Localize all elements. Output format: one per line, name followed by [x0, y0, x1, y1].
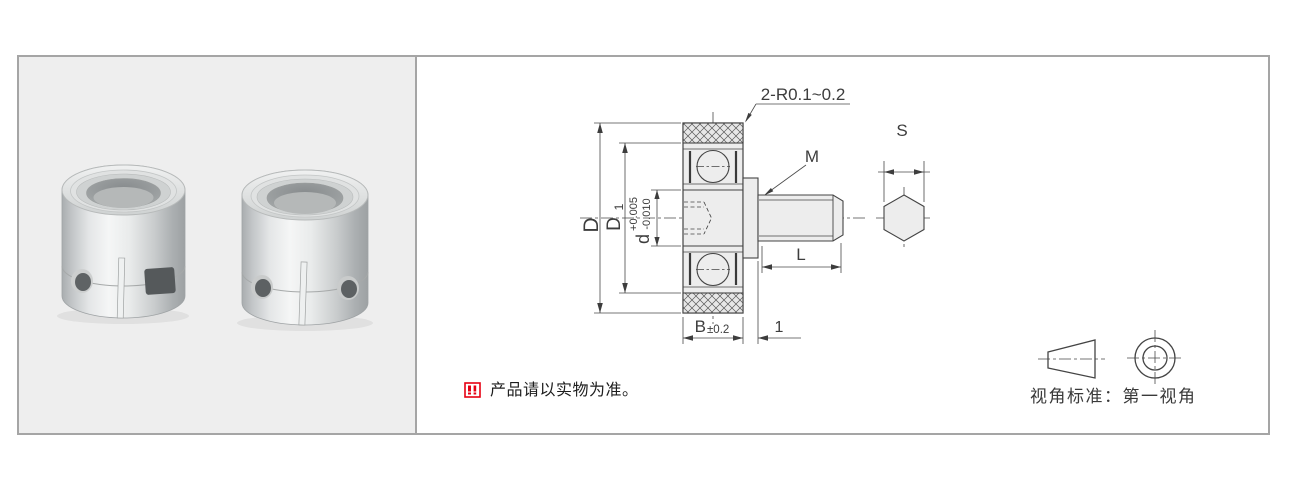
label-dim-D: D: [580, 217, 603, 232]
label-dim-d: d: [633, 234, 653, 244]
product-photo-panel: [19, 57, 417, 433]
technical-drawing: 2-R0.1~0.2 M S D D 1 +0.005 -0.010 d L B…: [417, 57, 1268, 433]
label-corner-radius: 2-R0.1~0.2: [761, 85, 846, 104]
threaded-stud: [758, 195, 843, 241]
technical-drawing-panel: 2-R0.1~0.2 M S D D 1 +0.005 -0.010 d L B…: [417, 57, 1268, 433]
hex-view: [884, 195, 924, 241]
centerlines: [580, 112, 1183, 386]
label-tolerance-plus: +0.005: [628, 197, 640, 231]
label-dim-L: L: [796, 245, 805, 264]
product-photo: [19, 57, 415, 433]
label-dim-D1: D: [604, 217, 625, 231]
knurl-band-bottom: [683, 293, 743, 313]
label-tolerance-minus: -0.010: [641, 198, 653, 229]
label-thread-M: M: [805, 147, 819, 166]
label-dim-B-tol: ±0.2: [707, 324, 729, 336]
disclaimer-text: 产品请以实物为准。: [490, 382, 639, 400]
label-dim-D1-sub: 1: [612, 203, 626, 210]
disclaimer-note: 产品请以实物为准。: [464, 382, 639, 400]
label-dim-B: B: [695, 317, 706, 336]
projection-caption: 视角标准：第一视角: [1030, 382, 1197, 407]
roller-right: [237, 170, 373, 331]
label-dim-step: 1: [775, 319, 784, 336]
collar: [743, 178, 758, 258]
knurl-band-top: [683, 123, 743, 143]
label-hex-S: S: [896, 121, 907, 140]
warning-icon: [464, 382, 481, 398]
roller-left: [57, 165, 189, 324]
product-detail-frame: 2-R0.1~0.2 M S D D 1 +0.005 -0.010 d L B…: [17, 55, 1270, 435]
